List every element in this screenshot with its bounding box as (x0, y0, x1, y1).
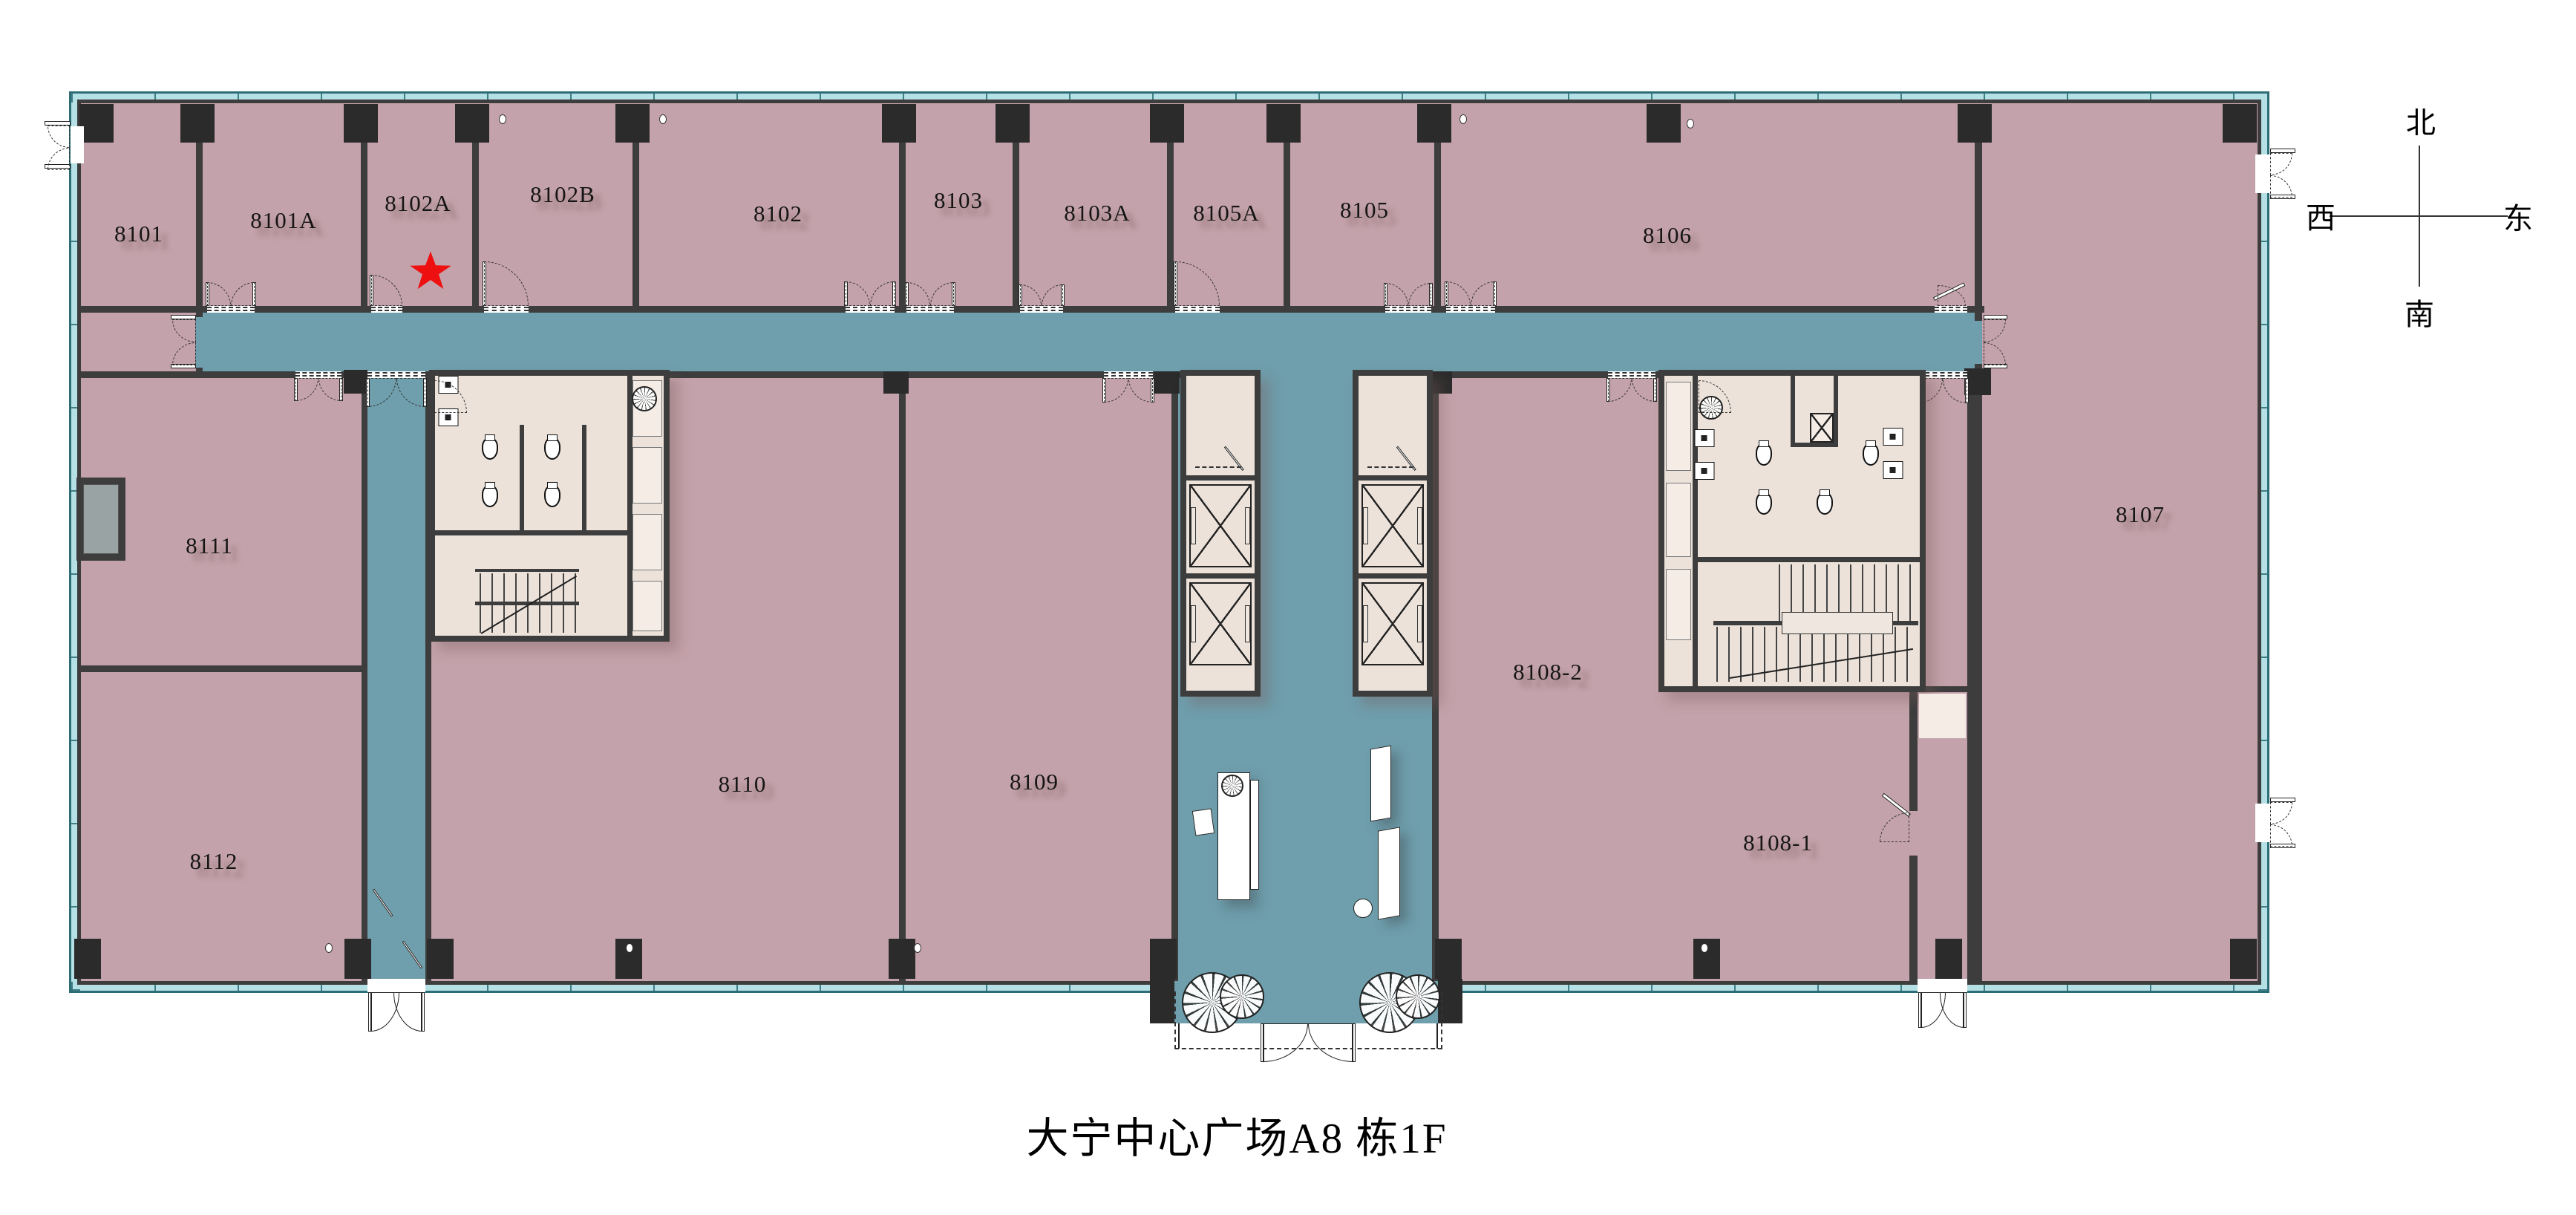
stair-tread (1776, 627, 1777, 682)
vestibule-dash-left (1174, 991, 1176, 1049)
room-label-8102A: 8102A (385, 190, 451, 217)
elevator-rail (1191, 507, 1196, 544)
door-sill (1104, 372, 1153, 377)
door-swing-arc (2270, 802, 2292, 824)
door-sill (1020, 307, 1063, 311)
core-wall (1791, 443, 1838, 447)
door-gap (2255, 154, 2270, 193)
wall (1432, 378, 1439, 981)
column (455, 104, 489, 143)
door-pivot-dot (914, 943, 921, 953)
shaft-x-box (1810, 413, 1834, 443)
room-label-8102: 8102 (753, 201, 802, 227)
entrance-door-arc-left (1263, 1023, 1308, 1062)
toilet-icon (544, 485, 560, 507)
compass-west: 西 (2306, 194, 2335, 237)
stair-tread (1897, 564, 1899, 621)
door-sill (1195, 466, 1241, 468)
shaft-cell (632, 581, 662, 631)
stair-tread (1823, 627, 1825, 682)
room-label-8101A: 8101A (250, 207, 316, 234)
room-label-8103A: 8103A (1064, 200, 1130, 227)
column (1935, 939, 1962, 979)
vestibule-dash-right (1441, 991, 1442, 1049)
door-pivot-dot (626, 943, 633, 953)
door-gap (2255, 804, 2270, 842)
core-wall (1693, 376, 1698, 686)
toilet-icon (1863, 443, 1879, 466)
stair-tread (1764, 627, 1765, 682)
door-swing-arc (1940, 992, 1965, 1028)
room-label-8110: 8110 (719, 771, 767, 798)
shaft-cell (632, 447, 662, 504)
door-pivot-dot (1687, 119, 1694, 128)
vestibule-dash-bottom (1174, 1048, 1442, 1049)
column (1958, 104, 1992, 143)
elevator-car (1189, 484, 1252, 567)
elevator-rail (1417, 507, 1422, 544)
stair-tread (1799, 627, 1801, 682)
egress-landing (1919, 694, 1966, 738)
room-label-8103: 8103 (934, 187, 983, 214)
wall (1430, 371, 1608, 378)
column (1154, 371, 1180, 394)
room-label-8105: 8105 (1340, 197, 1389, 224)
door-gap (1975, 321, 1982, 364)
column (344, 370, 367, 394)
sink-icon (1695, 429, 1715, 447)
feature-wall-upper (1370, 746, 1391, 822)
entrance-door-arc-right (1308, 1023, 1353, 1062)
stair-tread (1716, 627, 1718, 682)
room-label-8105A: 8105A (1193, 200, 1259, 227)
desk-plant-icon (1221, 775, 1243, 797)
exit-gap (1918, 979, 1967, 992)
toilet-icon (1756, 492, 1772, 515)
door-sill (367, 372, 425, 377)
room-label-8108-2: 8108-2 (1513, 659, 1583, 685)
toilet-icon (1756, 443, 1772, 466)
elevator-rail (1363, 507, 1368, 544)
floorplan: 81018101A8102A8102B810281038103A8105A810… (0, 0, 2576, 1215)
column (996, 104, 1030, 143)
stair-tread (1740, 627, 1742, 682)
stair-tread (1811, 627, 1813, 682)
core-wall (582, 425, 586, 530)
sink-icon (1695, 462, 1715, 480)
door-sill (295, 372, 341, 377)
column (344, 939, 371, 979)
toilet-icon (1817, 492, 1833, 515)
door-gap (1909, 811, 1918, 856)
column (1150, 979, 1174, 1023)
column (2230, 939, 2257, 979)
core-wall (1698, 557, 1920, 562)
entry-plant-icon (1396, 974, 1440, 1019)
core-wall (627, 376, 632, 636)
elevator-rail (1191, 605, 1196, 642)
shaft-cell (632, 514, 662, 570)
core-wall (1834, 376, 1838, 447)
entry-plant-icon (1220, 974, 1264, 1019)
stair-tread (1847, 627, 1848, 682)
stair-tread (1906, 627, 1908, 682)
wall (899, 378, 906, 981)
door-sill (1446, 307, 1495, 311)
door-sill (1385, 307, 1431, 311)
wall (79, 665, 367, 672)
wall (1967, 378, 1975, 981)
door-sill (371, 307, 402, 311)
room-label-8106: 8106 (1643, 222, 1692, 249)
column (882, 104, 916, 143)
toilet-icon (482, 437, 498, 460)
elevator-car (1361, 484, 1424, 567)
door-swing-arc (393, 992, 422, 1032)
room-label-8102B: 8102B (530, 181, 595, 208)
elevator-car (1361, 582, 1424, 665)
elevator-rail (1417, 605, 1422, 642)
compass-north: 北 (2406, 99, 2436, 142)
room-label-8109: 8109 (1010, 769, 1059, 795)
column (427, 939, 454, 979)
shaft-cell (1666, 382, 1691, 471)
door-swing-arc (2270, 175, 2292, 198)
wall (1171, 378, 1178, 981)
door-sill (207, 307, 255, 311)
stair-tread (1835, 627, 1837, 682)
column (180, 104, 215, 143)
plan-title: 大宁中心广场A8 栋1F (1026, 1104, 1447, 1165)
exit-gap (367, 979, 425, 992)
room-label-8101: 8101 (114, 221, 163, 247)
utility-box-inner (83, 484, 119, 554)
wall (79, 371, 295, 378)
door-swing-arc (2270, 153, 2292, 175)
core-wall (1791, 376, 1795, 447)
column (344, 104, 378, 143)
sink-icon (1883, 461, 1903, 479)
door-pivot-dot (1459, 114, 1467, 124)
stair-tread (1779, 564, 1780, 621)
room-label-8111: 8111 (186, 532, 233, 559)
core-wall (1186, 475, 1255, 481)
wall (362, 378, 367, 981)
door-swing-arc (48, 126, 70, 148)
door-sill (484, 307, 529, 311)
column (1435, 939, 1462, 979)
core-plant-icon (632, 386, 657, 411)
toilet-icon (482, 485, 498, 507)
shaft-cell (1666, 483, 1691, 557)
corridor-vertical-left (367, 313, 425, 981)
door-gap (71, 126, 84, 163)
reception-desk-panel (1250, 780, 1259, 890)
compass-east: 东 (2503, 195, 2533, 238)
core-wall (435, 530, 627, 535)
stool (1353, 899, 1373, 918)
room-label-8107: 8107 (2116, 501, 2165, 528)
feature-wall-lower (1378, 827, 1400, 919)
door-sill (1608, 372, 1655, 377)
column (615, 104, 650, 143)
column (889, 939, 915, 979)
stair-tread (1859, 627, 1860, 682)
room-label-8108-1: 8108-1 (1743, 830, 1813, 856)
door-swing-arc (48, 148, 70, 170)
column (1647, 104, 1681, 143)
elevator-rail (1245, 605, 1250, 642)
column (79, 104, 114, 143)
door-swing-arc (2270, 824, 2292, 847)
column (883, 371, 909, 394)
compass-south: 南 (2405, 290, 2434, 333)
shaft-cell (1666, 569, 1691, 640)
core-wall (1359, 573, 1427, 579)
compass-horizontal-line (2330, 215, 2508, 217)
corridor-horizontal (199, 313, 1978, 371)
door-pivot-dot (499, 114, 506, 124)
door-sill (846, 307, 895, 311)
column (74, 939, 101, 979)
door-pivot-dot (1701, 943, 1708, 953)
elevator-car (1189, 582, 1252, 665)
stair-tread (1728, 627, 1730, 682)
door-pivot-dot (325, 943, 333, 953)
door-sill (1935, 307, 1967, 311)
door-sill (1367, 466, 1413, 468)
door-gap (195, 317, 203, 368)
elevator-rail (1363, 605, 1368, 642)
stair-handrail (1782, 612, 1893, 634)
room-label-8112: 8112 (190, 848, 238, 875)
wall (1975, 104, 1982, 981)
sink-icon (1883, 428, 1903, 446)
column (1266, 104, 1301, 143)
core-wall (1359, 475, 1427, 481)
desk-chair (1192, 808, 1215, 835)
door-sill (1175, 307, 1220, 311)
column (1417, 104, 1451, 143)
column (1150, 939, 1177, 979)
door-pivot-dot (659, 114, 667, 124)
core-wall (1186, 573, 1255, 579)
stair-tread (1895, 627, 1896, 682)
core-wall (520, 425, 524, 530)
column (1150, 104, 1184, 143)
door-sill (906, 307, 954, 311)
stair-landing-edge (475, 569, 579, 572)
elevator-rail (1245, 507, 1250, 544)
stair-tread (1909, 564, 1911, 621)
column (2223, 104, 2257, 143)
stair-tread (1788, 627, 1789, 682)
toilet-icon (544, 437, 560, 460)
